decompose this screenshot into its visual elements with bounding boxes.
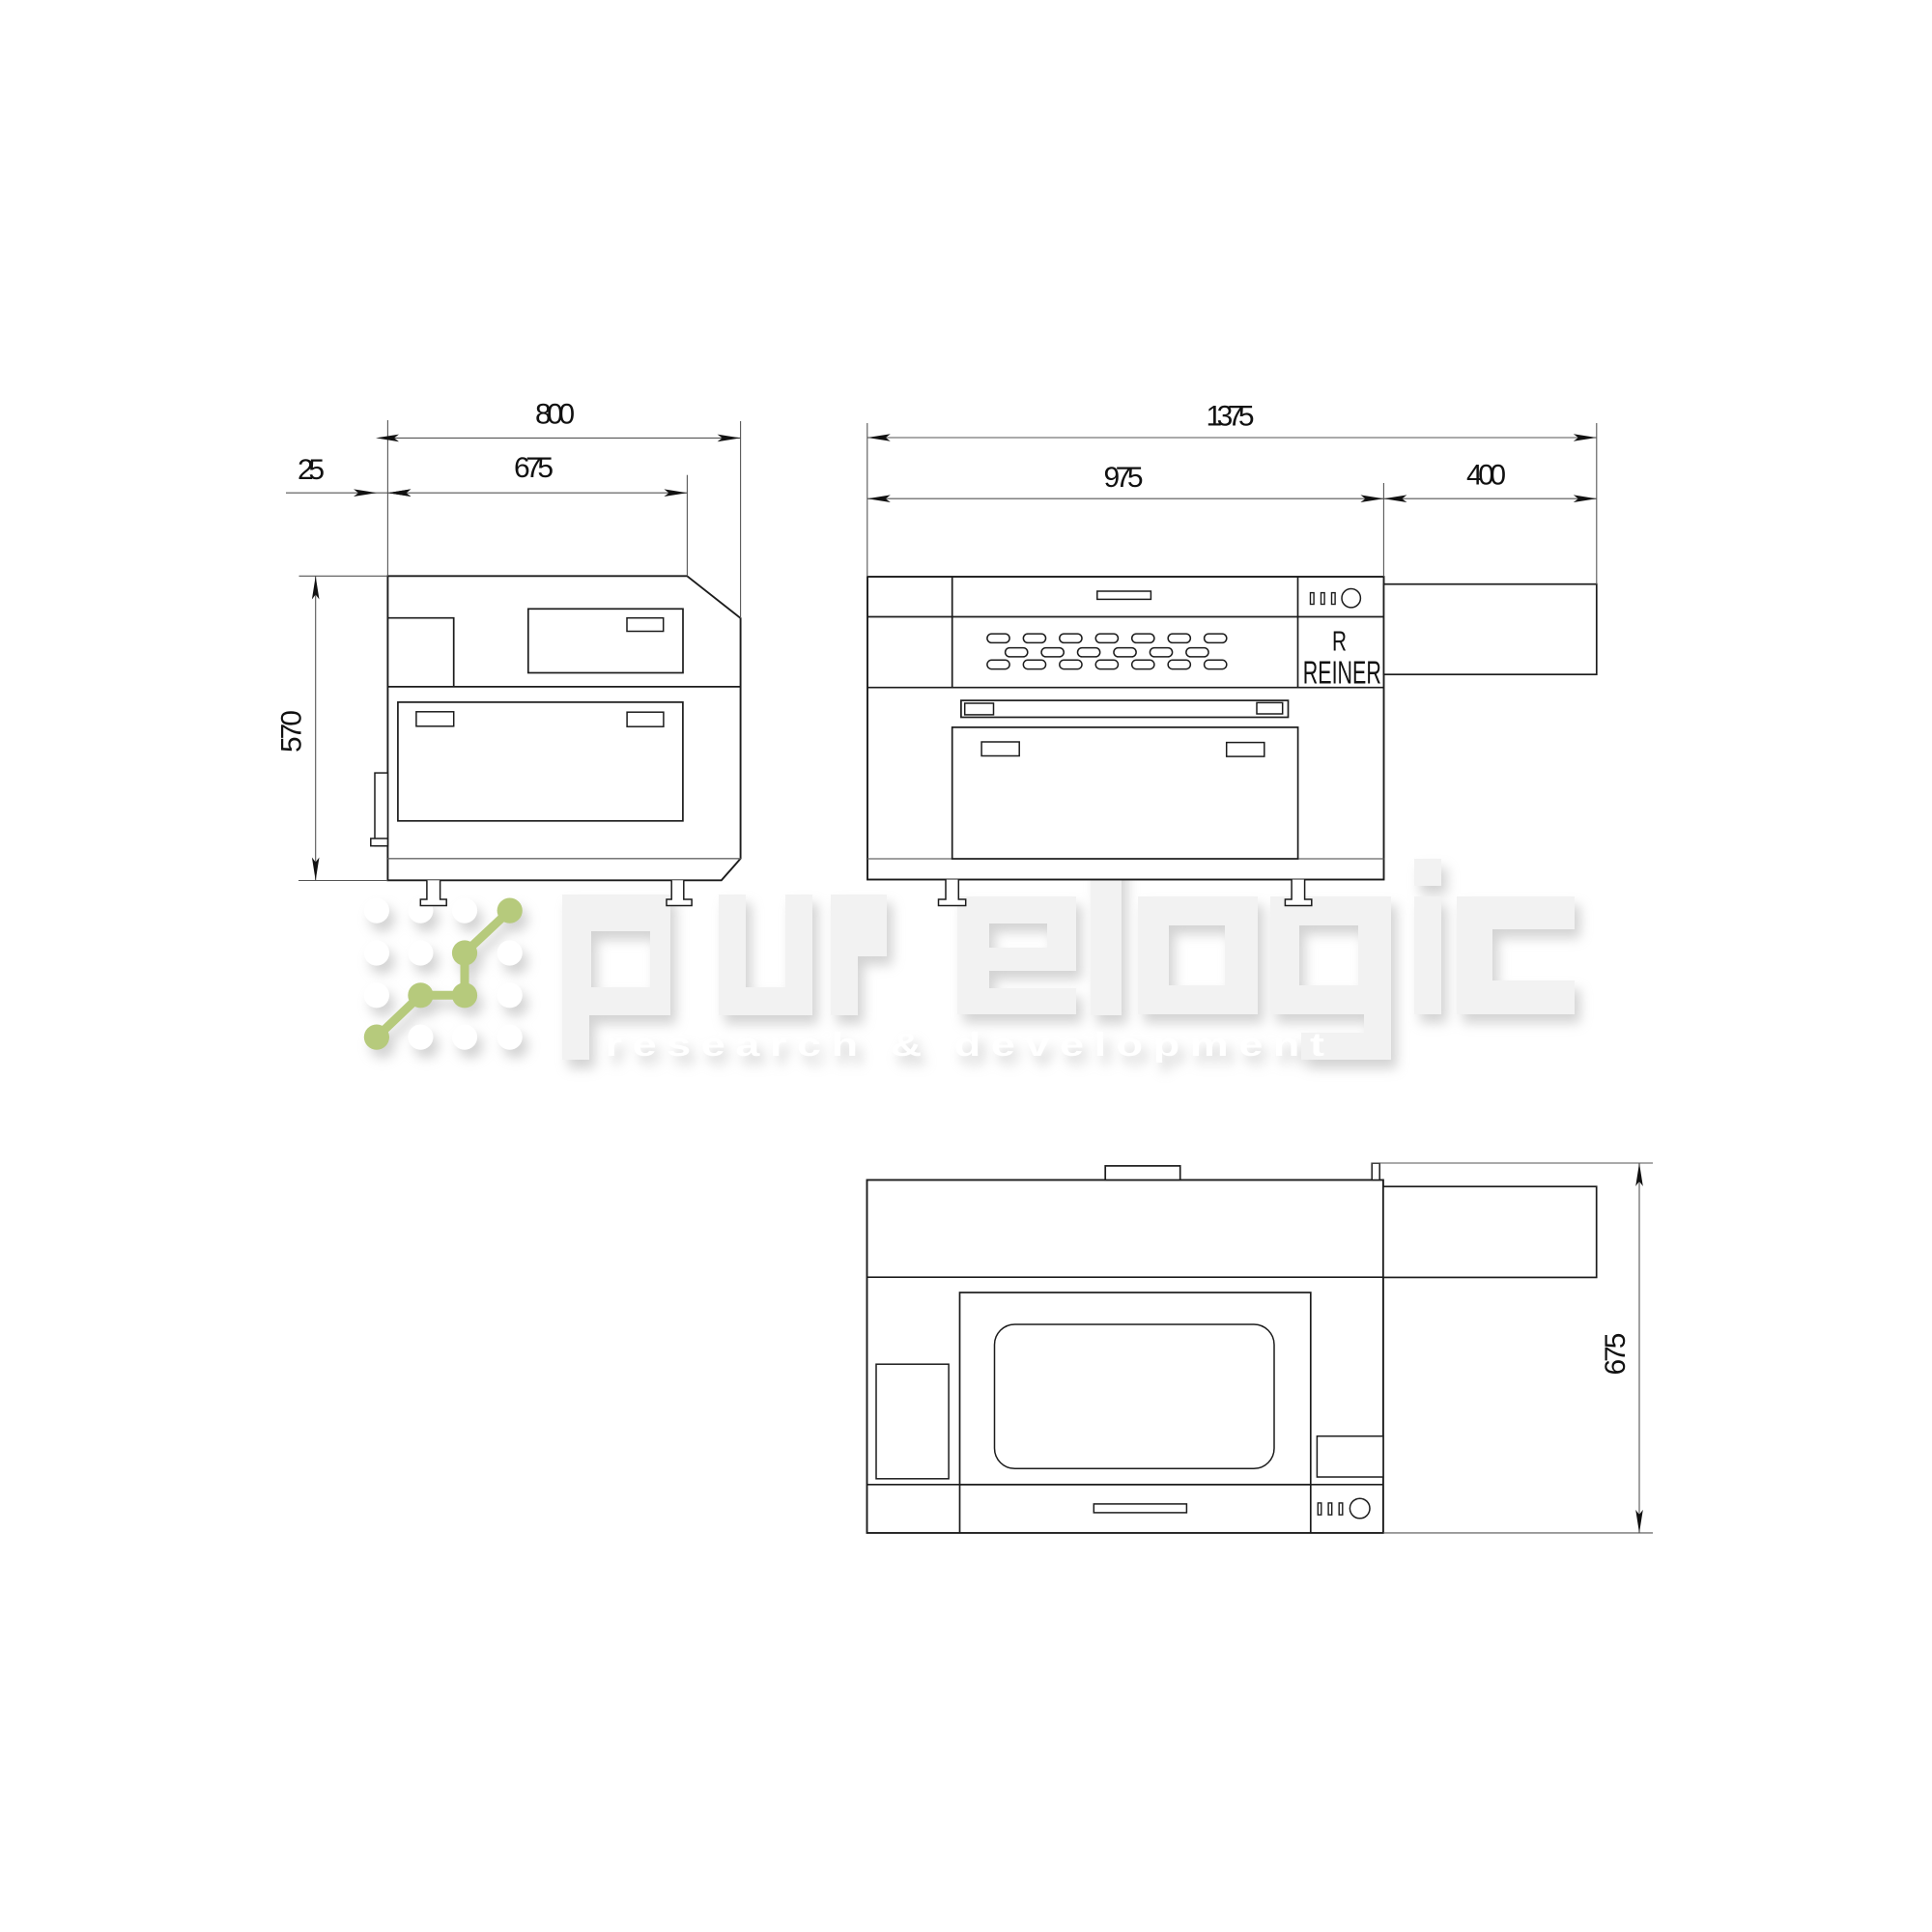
- svg-text:675: 675: [514, 452, 554, 484]
- svg-text:800: 800: [535, 399, 575, 431]
- svg-text:research & development: research & development: [606, 1027, 1335, 1064]
- svg-text:570: 570: [276, 710, 308, 753]
- svg-text:1375: 1375: [1207, 401, 1255, 433]
- svg-text:REINER: REINER: [1303, 655, 1381, 691]
- svg-text:675: 675: [1600, 1333, 1632, 1376]
- svg-text:25: 25: [298, 454, 325, 486]
- svg-text:975: 975: [1104, 462, 1144, 494]
- svg-text:R: R: [1332, 627, 1347, 658]
- svg-text:400: 400: [1466, 460, 1506, 492]
